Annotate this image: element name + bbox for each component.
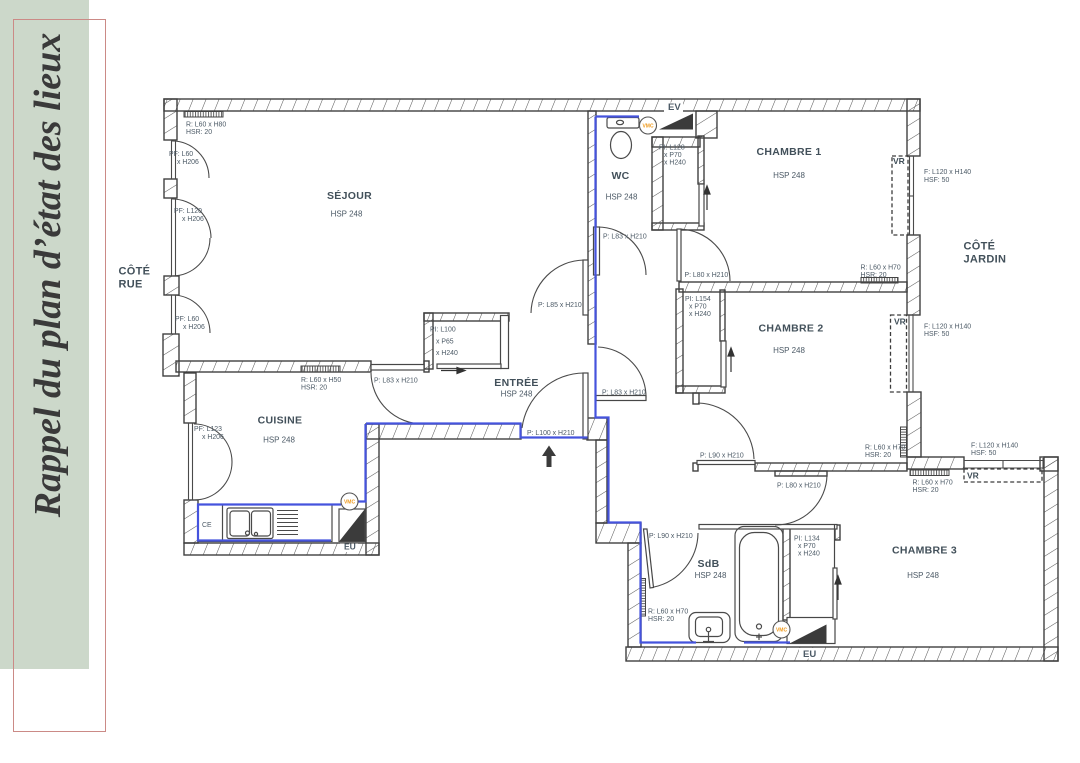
svg-text:EV: EV xyxy=(668,102,681,113)
svg-text:x H206: x H206 xyxy=(182,216,204,223)
svg-text:R: L60 x H70: R: L60 x H70 xyxy=(913,480,953,487)
svg-text:VR: VR xyxy=(894,317,906,327)
svg-text:EU: EU xyxy=(344,542,356,552)
svg-text:R: L60 x H70: R: L60 x H70 xyxy=(861,265,901,272)
svg-text:HSR: 20: HSR: 20 xyxy=(301,385,327,392)
svg-text:HSR: 20: HSR: 20 xyxy=(648,616,674,623)
svg-text:HSR: 20: HSR: 20 xyxy=(865,452,891,459)
svg-text:VMC: VMC xyxy=(344,500,356,506)
svg-text:HSR: 20: HSR: 20 xyxy=(913,487,939,494)
svg-text:x H206: x H206 xyxy=(183,324,205,331)
svg-text:HSR: 20: HSR: 20 xyxy=(861,272,887,279)
svg-text:RUE: RUE xyxy=(119,279,143,291)
svg-text:PF: L60: PF: L60 xyxy=(169,151,193,158)
svg-text:CÔTÉ: CÔTÉ xyxy=(119,265,151,278)
svg-text:R: L60 x H70: R: L60 x H70 xyxy=(865,445,905,452)
svg-text:P: L90 x H210: P: L90 x H210 xyxy=(700,453,744,460)
svg-text:VR: VR xyxy=(893,156,905,166)
svg-text:P: L85 x H210: P: L85 x H210 xyxy=(538,302,582,309)
svg-text:SÉJOUR: SÉJOUR xyxy=(327,189,372,202)
svg-text:HSP 248: HSP 248 xyxy=(773,171,805,180)
svg-text:PF: L120: PF: L120 xyxy=(174,208,202,215)
svg-text:HSP 248: HSP 248 xyxy=(695,571,727,580)
svg-text:x P65: x P65 xyxy=(436,339,454,346)
svg-text:PI: L134: PI: L134 xyxy=(794,536,820,543)
svg-text:F: L120 x H140: F: L120 x H140 xyxy=(924,324,971,331)
svg-text:JARDIN: JARDIN xyxy=(964,254,1007,266)
svg-text:x H240: x H240 xyxy=(689,311,711,318)
svg-text:x P70: x P70 xyxy=(664,152,682,159)
svg-text:CUISINE: CUISINE xyxy=(258,415,303,427)
svg-text:x H206: x H206 xyxy=(177,159,199,166)
svg-text:PI: L100: PI: L100 xyxy=(430,327,456,334)
svg-text:P: L83 x H210: P: L83 x H210 xyxy=(374,378,418,385)
svg-text:CE: CE xyxy=(202,522,212,529)
svg-text:x H240: x H240 xyxy=(664,160,686,167)
svg-text:x P70: x P70 xyxy=(689,304,707,311)
svg-text:x H206: x H206 xyxy=(202,434,224,441)
svg-text:HSF: 50: HSF: 50 xyxy=(924,331,949,338)
svg-text:CHAMBRE 1: CHAMBRE 1 xyxy=(756,146,821,158)
svg-text:HSP 248: HSP 248 xyxy=(263,436,295,445)
svg-text:HSP 248: HSP 248 xyxy=(606,193,638,202)
svg-text:HSP 248: HSP 248 xyxy=(773,346,805,355)
svg-text:VMC: VMC xyxy=(776,628,788,634)
svg-text:SdB: SdB xyxy=(698,558,720,570)
svg-text:PF: L123: PF: L123 xyxy=(194,426,222,433)
svg-text:PI: L128: PI: L128 xyxy=(659,145,685,152)
svg-text:x H240: x H240 xyxy=(798,551,820,558)
svg-text:EU: EU xyxy=(803,649,816,660)
svg-text:ENTRÉE: ENTRÉE xyxy=(494,376,538,389)
svg-text:R: L60 x H70: R: L60 x H70 xyxy=(648,609,688,616)
svg-text:HSP 248: HSP 248 xyxy=(907,571,939,580)
svg-text:x P70: x P70 xyxy=(798,543,816,550)
svg-text:P: L83 x H210: P: L83 x H210 xyxy=(602,390,646,397)
svg-text:P: L80 x H210: P: L80 x H210 xyxy=(685,272,729,279)
svg-text:P: L90 x H210: P: L90 x H210 xyxy=(649,533,693,540)
svg-text:PF: L60: PF: L60 xyxy=(175,316,199,323)
svg-text:x H240: x H240 xyxy=(436,350,458,357)
svg-text:R: L60 x H80: R: L60 x H80 xyxy=(186,122,226,129)
svg-text:CHAMBRE 2: CHAMBRE 2 xyxy=(758,323,823,335)
svg-text:HSF: 50: HSF: 50 xyxy=(924,177,949,184)
svg-text:HSP 248: HSP 248 xyxy=(331,210,363,219)
svg-text:HSR: 20: HSR: 20 xyxy=(186,129,212,136)
svg-text:CÔTÉ: CÔTÉ xyxy=(964,240,996,253)
svg-text:P: L80 x H210: P: L80 x H210 xyxy=(777,483,821,490)
svg-text:VR: VR xyxy=(967,471,979,481)
svg-text:F: L120 x H140: F: L120 x H140 xyxy=(971,443,1018,450)
svg-text:P: L100 x H210: P: L100 x H210 xyxy=(527,430,575,437)
svg-text:PI: L154: PI: L154 xyxy=(685,296,711,303)
svg-text:P: L83 x H210: P: L83 x H210 xyxy=(603,234,647,241)
svg-text:R: L60 x H50: R: L60 x H50 xyxy=(301,377,341,384)
svg-text:HSF: 50: HSF: 50 xyxy=(971,450,996,457)
svg-text:F: L120 x H140: F: L120 x H140 xyxy=(924,169,971,176)
svg-text:VMC: VMC xyxy=(642,124,654,130)
svg-text:HSP 248: HSP 248 xyxy=(501,390,533,399)
svg-text:CHAMBRE 3: CHAMBRE 3 xyxy=(892,545,957,557)
svg-text:WC: WC xyxy=(611,170,629,182)
